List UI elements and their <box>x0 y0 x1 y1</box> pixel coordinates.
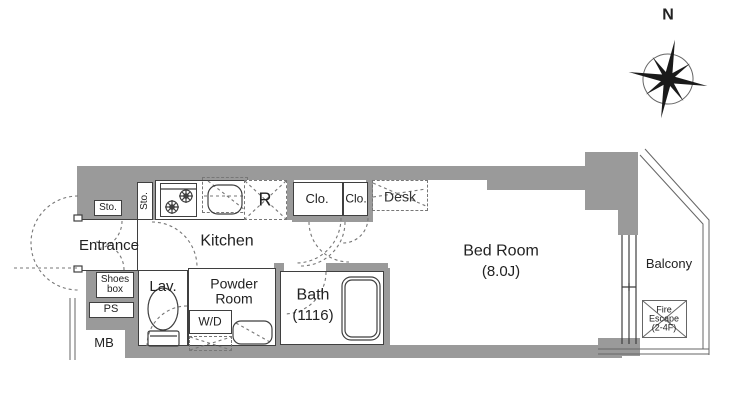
floor-plan: N Entrance Sto. Sto. Kitchen R Clo. Clo.… <box>0 0 755 406</box>
bath-name-label: Bath <box>297 288 330 305</box>
storage-upper-label: Sto. <box>99 203 117 214</box>
shoes-box-label-2: box <box>107 285 123 296</box>
wall-bottom-right-step <box>598 338 640 356</box>
bedroom-name-label: Bed Room <box>463 244 539 261</box>
fire-escape-label-3: (2-4F) <box>652 323 677 332</box>
desk-label: Desk <box>384 190 416 205</box>
compass-north-label: N <box>662 8 674 25</box>
wall-under-closets <box>292 216 367 222</box>
bath-size-label: (1116) <box>292 308 333 324</box>
mb-label: MB <box>94 336 114 350</box>
kitchen-label: Kitchen <box>200 234 253 251</box>
lobby-door-arc-b <box>309 222 349 262</box>
bedroom-size-label: (8.0J) <box>482 264 520 280</box>
closet2-label: Clo. <box>345 193 366 206</box>
lobby-door-arc-a <box>301 222 345 266</box>
entrance-door-arc <box>31 196 78 290</box>
closet1-label: Clo. <box>305 192 328 206</box>
lavatory-label: Lav. <box>149 279 176 295</box>
powder-room-label-2: Room <box>215 292 252 307</box>
wall-top-b <box>487 166 585 190</box>
fridge-label: R <box>259 191 272 210</box>
hall-door-arc <box>152 222 197 267</box>
range-hood-box <box>202 177 248 213</box>
balcony-label: Balcony <box>646 257 692 271</box>
wall-top-right-step <box>585 190 618 210</box>
washer-dryer-label: W/D <box>198 316 221 329</box>
stove-box <box>160 183 197 217</box>
powder-room-label-1: Powder <box>210 277 257 292</box>
compass-icon <box>622 33 715 126</box>
ps-label: PS <box>104 304 119 316</box>
storage-side-label: Sto. <box>140 192 151 210</box>
bedroom-window <box>622 235 636 344</box>
site-boundary-lines <box>70 298 75 360</box>
wall-window-top-column <box>618 152 638 235</box>
washer-space-box <box>189 336 232 351</box>
entrance-label: Entrance <box>79 238 139 254</box>
closet1-door-arc <box>296 218 341 263</box>
